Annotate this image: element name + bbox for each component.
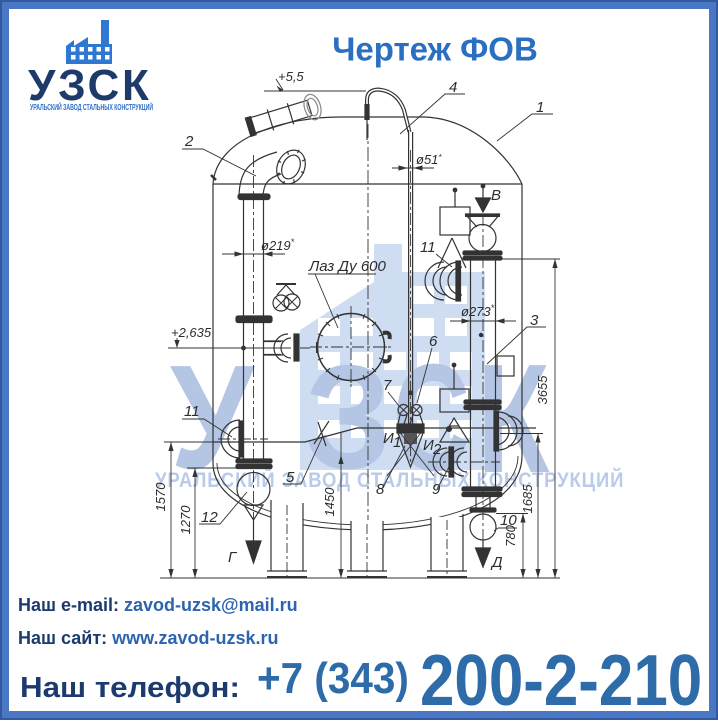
svg-text:+7 (343): +7 (343) — [257, 653, 409, 702]
svg-text:200-2-210: 200-2-210 — [420, 641, 702, 720]
svg-text:ø273*: ø273* — [461, 303, 495, 319]
svg-text:УРАЛЬСКИЙ ЗАВОД СТАЛЬНЫХ КОНСТ: УРАЛЬСКИЙ ЗАВОД СТАЛЬНЫХ КОНСТРУКЦИЙ — [155, 467, 624, 492]
svg-text:8: 8 — [376, 481, 385, 498]
svg-text:10: 10 — [500, 512, 517, 529]
svg-text:1570: 1570 — [153, 482, 168, 512]
svg-text:1: 1 — [536, 99, 544, 116]
svg-text:9: 9 — [432, 481, 441, 498]
svg-text:6: 6 — [429, 333, 438, 350]
svg-text:В: В — [491, 187, 501, 204]
svg-text:ø219*: ø219* — [261, 237, 295, 253]
svg-text:2: 2 — [184, 133, 194, 150]
svg-text:4: 4 — [449, 79, 457, 96]
svg-text:12: 12 — [201, 509, 218, 526]
svg-text:УЗСК: УЗСК — [28, 61, 152, 110]
svg-text:Наш сайт: www.zavod-uzsk.ru: Наш сайт: www.zavod-uzsk.ru — [18, 628, 279, 648]
svg-text:1270: 1270 — [178, 505, 193, 535]
svg-text:11: 11 — [420, 239, 436, 256]
svg-text:7: 7 — [383, 377, 392, 394]
svg-text:Лаз Ду 600: Лаз Ду 600 — [308, 258, 387, 275]
svg-text:Чертеж ФОВ: Чертеж ФОВ — [332, 31, 538, 68]
svg-text:11: 11 — [184, 403, 200, 420]
svg-text:Наш телефон:: Наш телефон: — [20, 672, 240, 704]
svg-text:+5,5: +5,5 — [278, 69, 304, 84]
svg-text:Наш e-mail: zavod-uzsk@mail.ru: Наш e-mail: zavod-uzsk@mail.ru — [18, 595, 298, 615]
svg-text:1685: 1685 — [520, 484, 535, 514]
svg-text:3: 3 — [530, 312, 539, 329]
svg-text:УРАЛЬСКИЙ ЗАВОД СТАЛЬНЫХ КОНСТ: УРАЛЬСКИЙ ЗАВОД СТАЛЬНЫХ КОНСТРУКЦИЙ — [30, 102, 153, 113]
svg-text:2: 2 — [432, 441, 442, 458]
svg-text:1450: 1450 — [322, 487, 337, 517]
svg-text:1: 1 — [393, 434, 401, 451]
svg-text:+2,635: +2,635 — [171, 325, 212, 340]
svg-text:Д: Д — [490, 554, 503, 571]
svg-text:3655: 3655 — [535, 375, 550, 405]
svg-text:5: 5 — [286, 469, 295, 486]
